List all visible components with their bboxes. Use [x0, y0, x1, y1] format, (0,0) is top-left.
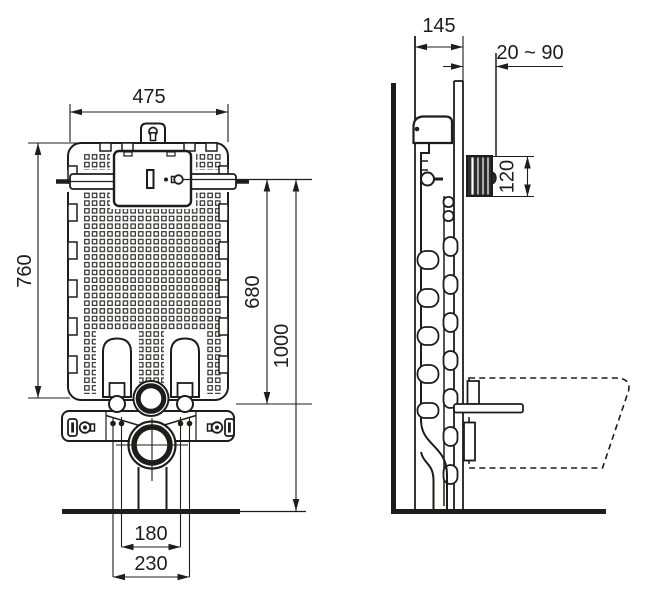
dim-access-opening-height: 120: [493, 157, 534, 197]
dim-wall-finish-range: 20 ~ 90: [443, 42, 564, 67]
dim-bolt-spacing-outer-label: 230: [134, 553, 167, 575]
dim-depth-label: 145: [422, 15, 455, 37]
actuator-access-box: [467, 156, 496, 196]
dim-depth: 145: [415, 15, 463, 81]
outlet-spigot: [464, 423, 475, 461]
dim-overall-height: 1000: [271, 180, 296, 512]
inspection-window: [114, 151, 191, 206]
foot-circle-left: [109, 396, 125, 412]
dim-flush-pipe-height: 680: [236, 180, 312, 405]
fixing-rod: [454, 404, 523, 413]
hanger-tab: [141, 124, 165, 144]
pan-fixing-hardware: [454, 381, 523, 461]
fixing-bracket: [468, 381, 480, 404]
dim-bolt-spacing-inner: 180: [122, 523, 181, 547]
side-lug: [421, 173, 434, 186]
window-dot: [164, 178, 168, 182]
keyhole-slot: [150, 133, 155, 141]
front-view: 475 760 680 1000 180 230: [14, 86, 312, 577]
flush-pipe: [134, 381, 169, 416]
cistern-installation-diagram: 475 760 680 1000 180 230: [0, 0, 652, 600]
vent-dot: [415, 127, 420, 132]
dim-wall-finish-range-label: 20 ~ 90: [496, 42, 563, 64]
technical-drawing: 475 760 680 1000 180 230: [0, 0, 652, 600]
window-slot: [147, 170, 154, 188]
dim-flush-pipe-height-label: 680: [242, 275, 264, 308]
ribs-right: [444, 197, 458, 484]
dim-overall-height-label: 1000: [271, 324, 293, 369]
dim-bolt-spacing-inner-label: 180: [134, 523, 167, 545]
dim-bolt-spacing-outer: 230: [113, 553, 190, 577]
foot-circle-right: [177, 396, 193, 412]
inlet-port: [174, 175, 183, 184]
toilet-pan-outline: [469, 378, 629, 468]
dim-access-opening-height-label: 120: [497, 160, 519, 193]
dim-width-label: 475: [132, 86, 165, 108]
side-view: 145 20 ~ 90 120: [391, 15, 629, 512]
dim-tank-height-label: 760: [14, 254, 36, 287]
wall-line: [391, 83, 396, 512]
cistern-profile: [414, 117, 458, 512]
